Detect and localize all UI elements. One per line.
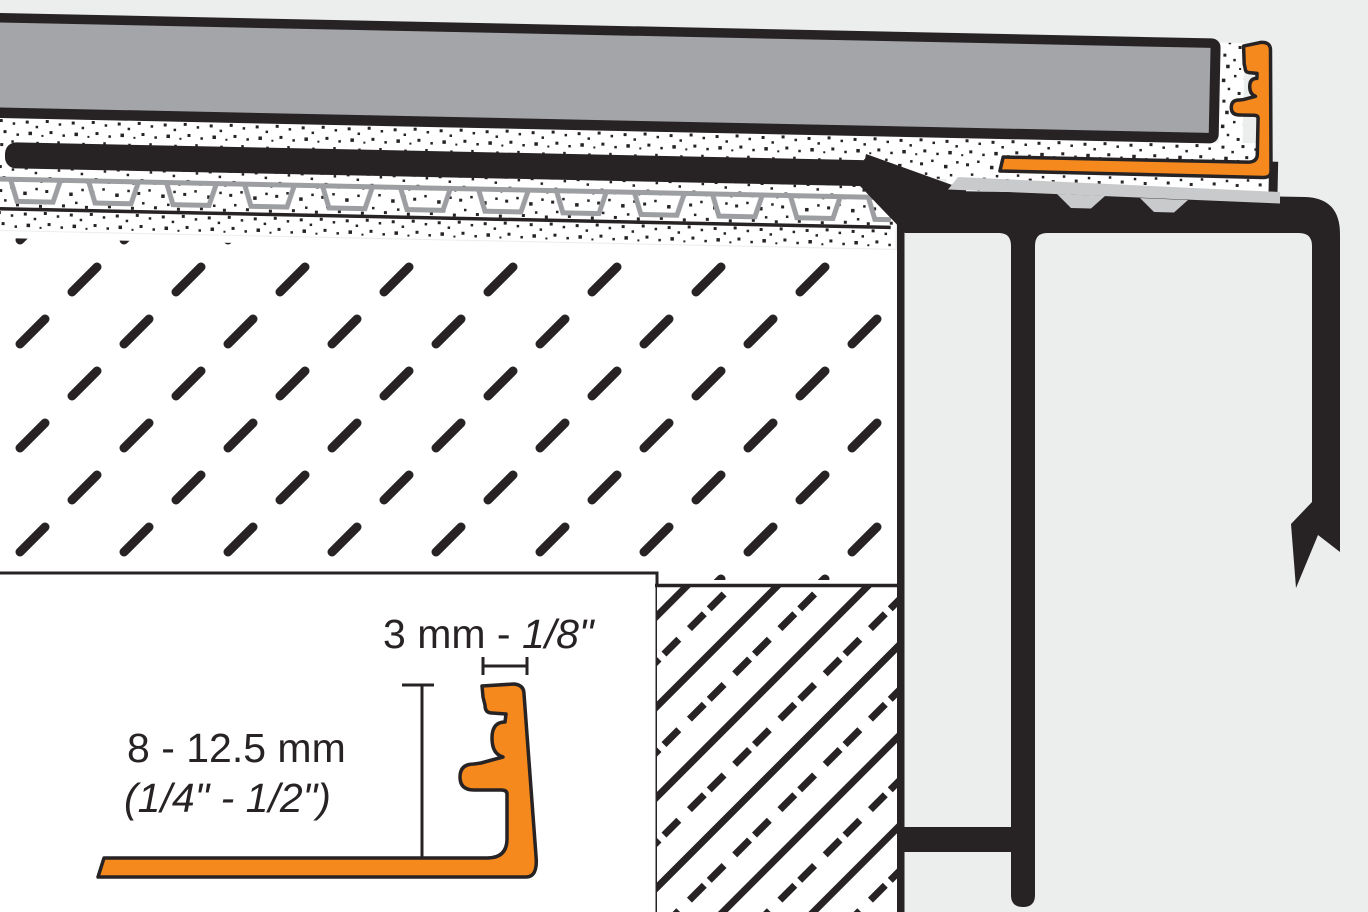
height-dimension-label-metric: 8 - 12.5 mm [127,725,346,771]
width-dimension-label: 3 mm - 1/8" [383,611,596,657]
profile-installation-cross-section: 3 mm - 1/8" 8 - 12.5 mm (1/4" - 1/2") [0,0,1368,912]
mortar-bed [0,231,897,586]
height-dimension-label-imperial: (1/4" - 1/2") [124,775,331,821]
bottom-bracket [897,827,1013,852]
concrete-substrate [655,584,902,912]
wall-face-line [897,215,905,912]
mortar-bed-hatch [0,238,897,580]
concrete-hatch [657,584,900,912]
